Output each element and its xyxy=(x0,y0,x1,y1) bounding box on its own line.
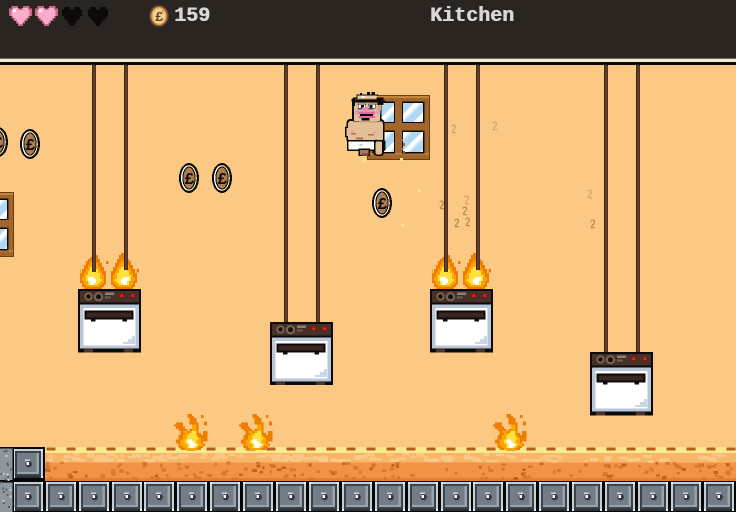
svg-text:£: £ xyxy=(154,10,163,26)
